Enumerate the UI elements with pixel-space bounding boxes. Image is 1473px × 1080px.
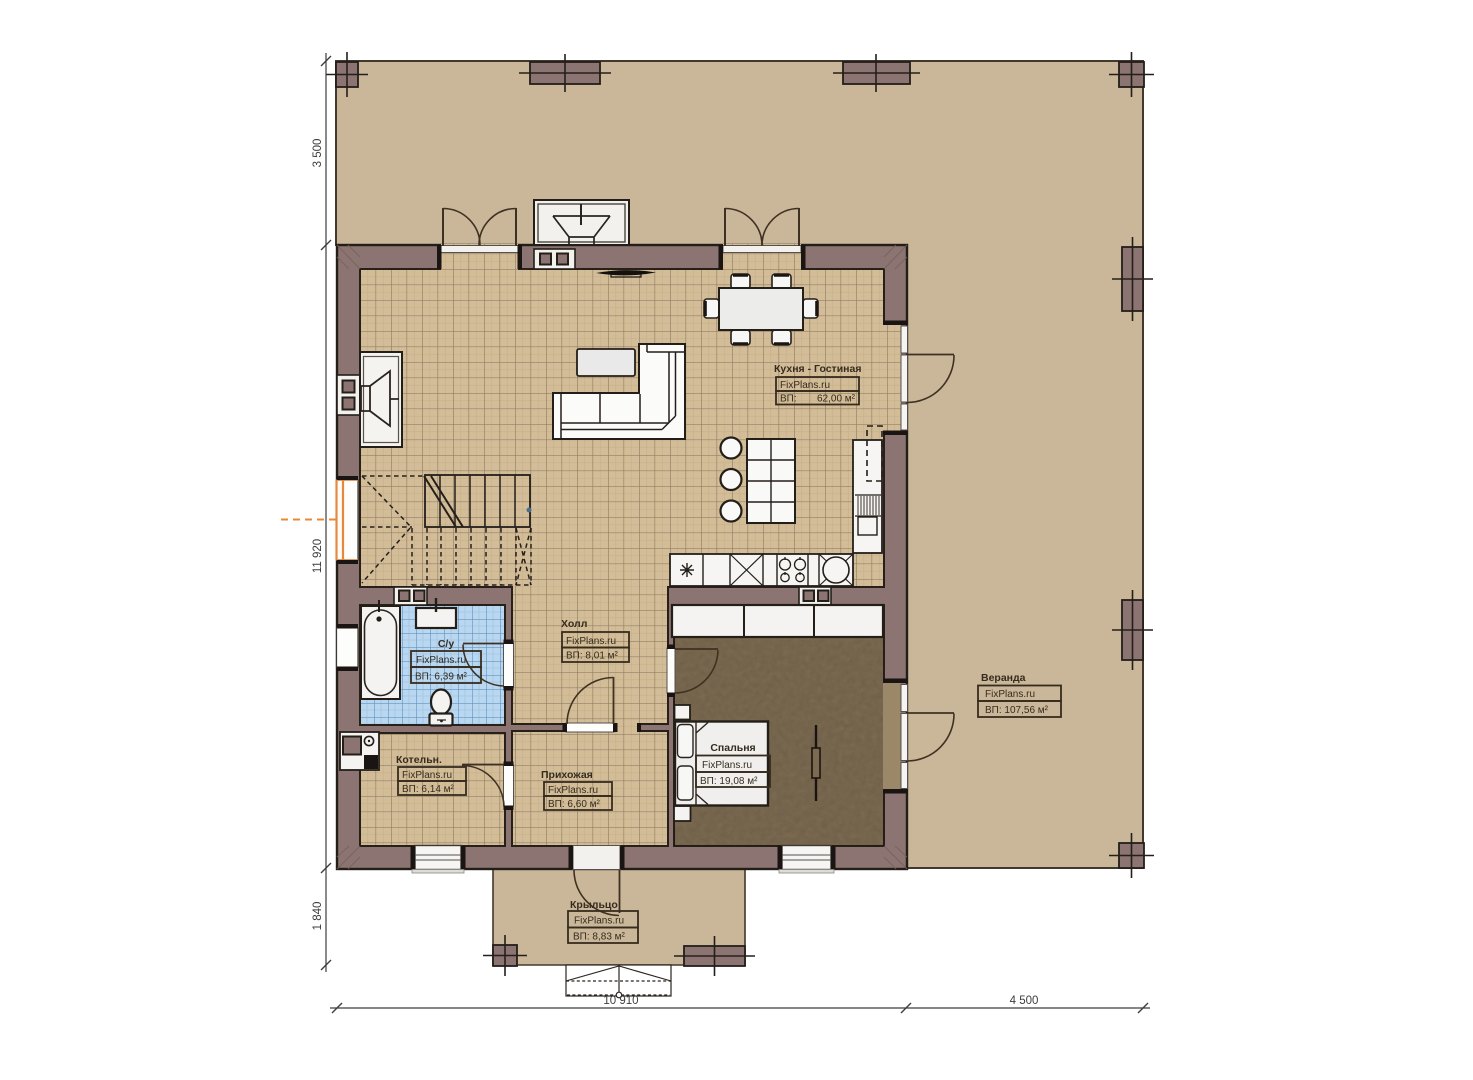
svg-text:ВП:: ВП: (780, 394, 797, 405)
svg-text:Спальня: Спальня (710, 742, 755, 754)
svg-text:ВП: 6,60 м²: ВП: 6,60 м² (548, 799, 601, 810)
svg-text:FixPlans.ru: FixPlans.ru (416, 655, 466, 666)
svg-text:ВП: 6,39 м²: ВП: 6,39 м² (415, 672, 468, 683)
svg-text:Котельн.: Котельн. (396, 754, 442, 766)
svg-text:FixPlans.ru: FixPlans.ru (566, 636, 616, 647)
svg-text:ВП: 19,08 м²: ВП: 19,08 м² (700, 776, 758, 787)
svg-text:С/у: С/у (438, 638, 455, 650)
svg-text:Кухня - Гостиная: Кухня - Гостиная (774, 363, 861, 375)
svg-text:ВП: 107,56 м²: ВП: 107,56 м² (985, 705, 1049, 716)
svg-text:Крыльцо: Крыльцо (570, 899, 618, 911)
svg-text:FixPlans.ru: FixPlans.ru (985, 689, 1035, 700)
svg-text:1 840: 1 840 (312, 902, 324, 931)
svg-text:ВП: 6,14 м²: ВП: 6,14 м² (402, 784, 455, 795)
svg-text:Веранда: Веранда (981, 672, 1026, 684)
svg-text:FixPlans.ru: FixPlans.ru (574, 916, 624, 927)
svg-text:3 500: 3 500 (312, 139, 324, 168)
svg-text:ВП: 8,83 м²: ВП: 8,83 м² (573, 932, 626, 943)
svg-text:FixPlans.ru: FixPlans.ru (702, 760, 752, 771)
svg-text:4 500: 4 500 (1010, 995, 1039, 1007)
svg-text:Холл: Холл (561, 618, 587, 630)
svg-text:11 920: 11 920 (312, 539, 324, 573)
svg-text:10 910: 10 910 (603, 995, 638, 1007)
svg-text:Прихожая: Прихожая (541, 769, 593, 781)
svg-text:FixPlans.ru: FixPlans.ru (402, 770, 452, 781)
svg-text:FixPlans.ru: FixPlans.ru (780, 380, 830, 391)
svg-text:ВП: 8,01 м²: ВП: 8,01 м² (566, 651, 619, 662)
svg-text:FixPlans.ru: FixPlans.ru (548, 785, 598, 796)
svg-text:62,00 м²: 62,00 м² (817, 394, 856, 405)
